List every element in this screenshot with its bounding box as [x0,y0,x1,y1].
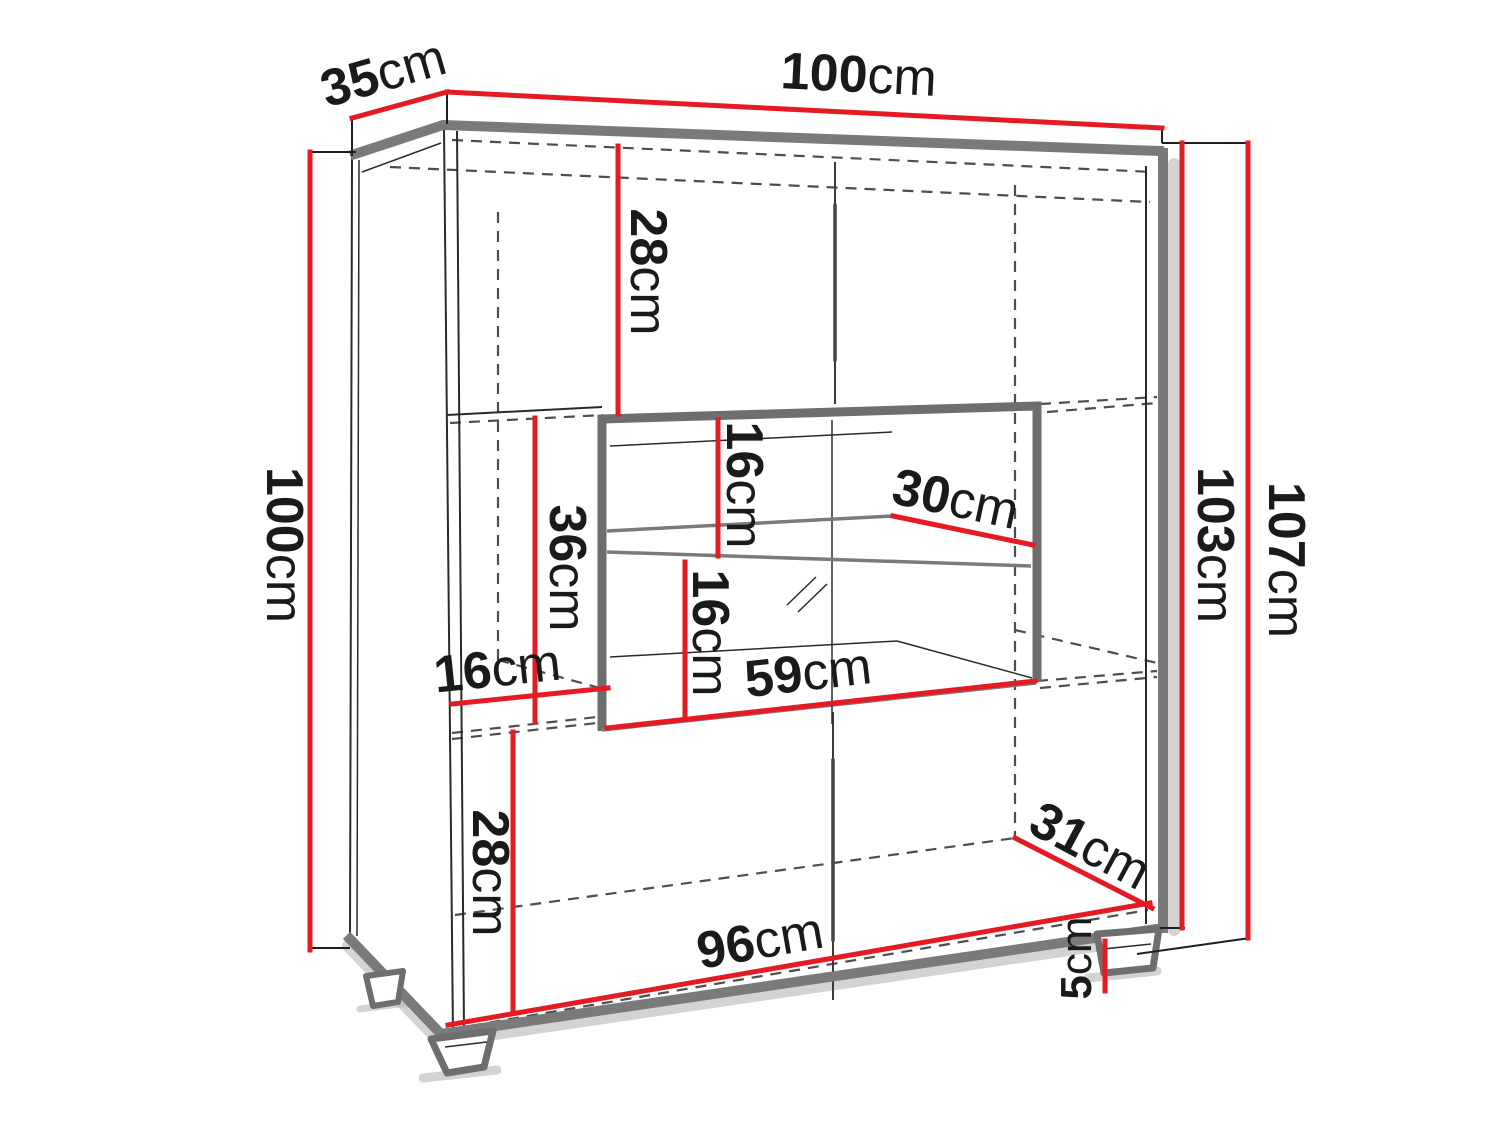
side-panel-back-edge-outer [350,158,352,938]
upper-shelf-left-dashed [450,415,603,423]
furniture-dimension-diagram: 35cm 100cm 100cm 103cm 107cm 28cm 16cm 3… [0,0,1500,1125]
front-left-stile-outer-edge [444,128,453,1036]
dim-label-bottom-compartment: 28cm [461,809,519,936]
dim-label-inner-width-bottom: 96cm [692,902,827,981]
glass-shelf-front-edge [607,552,1031,566]
upper-shelf-right-dashed-1 [1040,397,1157,404]
upper-shelf-right-dashed-2 [1047,403,1157,412]
dim-label-niche-upper: 16cm [715,421,773,548]
top-panel-edge [355,125,1159,154]
glass-reflection-mark-2 [798,584,827,612]
dimension-labels: 35cm 100cm 100cm 103cm 107cm 28cm 16cm 3… [255,28,1315,999]
dim-label-middle-left-height: 36cm [538,504,596,631]
dim-label-depth-top: 35cm [314,28,452,119]
dim-label-depth-bottom: 31cm [1020,791,1160,902]
dim-label-niche-lower: 16cm [681,569,739,696]
glass-reflection-mark-1 [787,577,816,605]
front-left-foot [431,1031,493,1073]
dim-label-shelf-depth: 30cm [887,458,1023,541]
upper-shelf-left-front-edge [447,407,602,415]
side-panel-back-edge-inner [357,160,359,936]
dim-label-height-total: 107cm [1257,482,1315,638]
dim-label-height-left: 100cm [255,467,313,623]
dim-label-height-carcass: 103cm [1186,467,1244,623]
niche-floor-right-edge [897,641,1032,678]
dim-label-leg-height: 5cm [1052,916,1101,999]
cabinet-diagram-canvas: 35cm 100cm 100cm 103cm 107cm 28cm 16cm 3… [0,0,1500,1125]
dim-label-top-compartment: 28cm [619,208,677,335]
top-interior-rear-edge-dashed [390,167,1150,202]
dim-label-width-top: 100cm [779,42,938,108]
back-left-foot [366,971,403,1006]
bottom-interior-back-edge-dashed [455,838,1015,915]
